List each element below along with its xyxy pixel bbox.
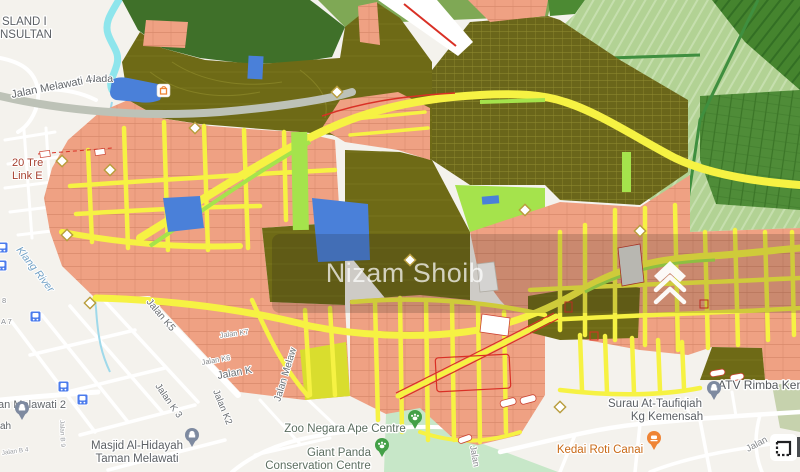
masjid-label-2[interactable]: Taman Melawati (95, 453, 178, 465)
island-label-1: SLAND I (2, 16, 47, 28)
a7-label: A 7 (1, 317, 12, 326)
twenty-trees-label-1: 20 Tre (12, 157, 43, 169)
map-svg: SLAND I NSULTAN Nada Jalan Melawati 4 20… (0, 0, 800, 472)
island-label-2: NSULTAN (0, 29, 52, 41)
watermark-text: Nizam Shoib (326, 258, 485, 288)
residential-top-small (143, 20, 188, 48)
surau-label-2[interactable]: Kg Kemensah (631, 411, 703, 423)
jalan-melawati-2-label: Jalan Melawati 2 (0, 399, 66, 411)
jalan-b9-label: Jalan B 9 (58, 420, 66, 448)
b8-label: 8 (2, 296, 6, 305)
giant-panda-label-1[interactable]: Giant Panda (307, 447, 372, 459)
residential-se-small (765, 332, 800, 380)
twenty-trees-label-2: Link E (12, 170, 43, 182)
zoo-ape-label[interactable]: Zoo Negara Ape Centre (284, 423, 405, 435)
atv-label[interactable]: ATV Rimba Kem (718, 378, 800, 392)
residential-band-west (358, 2, 380, 45)
map-control-button[interactable] (770, 434, 797, 461)
masjid-partial-label: ah (0, 421, 11, 432)
masjid-label-1[interactable]: Masjid Al-Hidayah (91, 440, 183, 452)
kedai-roti-label[interactable]: Kedai Roti Canai (557, 444, 643, 456)
giant-panda-label-2[interactable]: Conservation Centre (265, 460, 370, 472)
map-canvas[interactable]: SLAND I NSULTAN Nada Jalan Melawati 4 20… (0, 0, 800, 472)
surau-label-1[interactable]: Surau At-Taufiqiah (608, 398, 702, 410)
shopping-icon[interactable] (157, 84, 170, 97)
plantation-dark-parcels (700, 90, 800, 210)
